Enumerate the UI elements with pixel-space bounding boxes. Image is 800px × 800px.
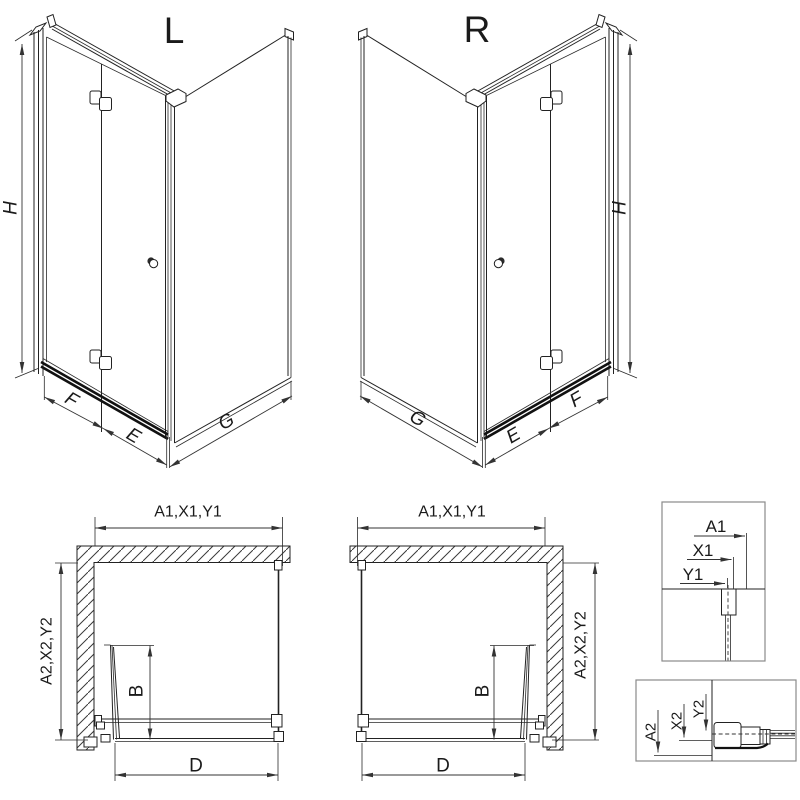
glass-clamp-section: [760, 730, 770, 745]
side-panel-bottom-bracket: [274, 732, 284, 742]
perspective-view-geometry: [15, 15, 294, 469]
g-label-left: G: [215, 409, 238, 435]
detail-a1-label: A1: [706, 517, 727, 536]
drawing-canvas: L H F E G R H F E G: [0, 0, 800, 800]
bottom-rail: [41, 359, 168, 440]
side-panel: [175, 29, 294, 448]
plan-right-width-label: A1,X1,Y1: [418, 504, 486, 521]
plan-right-b-label: B: [473, 685, 494, 698]
door-glass-top-edge: [47, 37, 166, 96]
height-label-left: H: [1, 201, 22, 215]
view-left-title: L: [164, 10, 185, 51]
plan-left-width-label: A1,X1,Y1: [154, 504, 222, 521]
door-knob: [147, 257, 157, 267]
height-label-right: H: [610, 201, 631, 215]
top-rail: [47, 15, 177, 100]
technical-drawing-shower-enclosure: L H F E G R H F E G: [0, 0, 800, 800]
wall-end-cap: [84, 737, 97, 747]
f-label-left: F: [61, 388, 83, 413]
view-right-title: R: [464, 9, 491, 50]
door-bottom-bracket: [101, 735, 110, 743]
plan-left-b-label: B: [127, 685, 148, 698]
plan-left-d-label: D: [189, 756, 203, 777]
rail-wall-bracket: [47, 15, 56, 28]
f-label-right: F: [566, 387, 588, 412]
rail-connector-section: [741, 727, 760, 745]
hinge-top: [100, 98, 112, 111]
plan-view-right-geometry: [357, 561, 557, 748]
door-pivot-bracket: [97, 722, 105, 729]
side-panel-top-cap: [285, 29, 294, 41]
rail-panel-bracket: [272, 715, 283, 728]
perspective-view-right-geometry: [359, 15, 638, 469]
detail-depth-profile: [636, 680, 796, 761]
plan-view-geometry: [84, 561, 284, 748]
wall-profile: [30, 23, 47, 376]
plan-left-depth-label: A2,X2,Y2: [39, 617, 56, 685]
folded-door: [104, 645, 120, 740]
bottom-rail-section: [714, 723, 741, 749]
detail-a2-label: A2: [642, 723, 659, 741]
hinge-bottom: [100, 357, 112, 370]
plan-right-depth-label: A2,X2,Y2: [573, 611, 590, 679]
door-rail: [101, 719, 272, 723]
door-hinges: [90, 91, 112, 370]
side-panel-wall-cap: [275, 561, 283, 571]
g-label-right: G: [406, 406, 429, 432]
wall-profile-section: [722, 589, 737, 615]
detail-x2-label: X2: [668, 712, 685, 730]
plan-right-d-label: D: [436, 756, 450, 777]
detail-y1-label: Y1: [683, 565, 704, 584]
detail-y2-label: Y2: [690, 700, 707, 718]
threshold: [115, 739, 280, 742]
e-label-left: E: [123, 424, 145, 449]
corner-post: [166, 89, 187, 443]
detail-x1-label: X1: [693, 541, 714, 560]
